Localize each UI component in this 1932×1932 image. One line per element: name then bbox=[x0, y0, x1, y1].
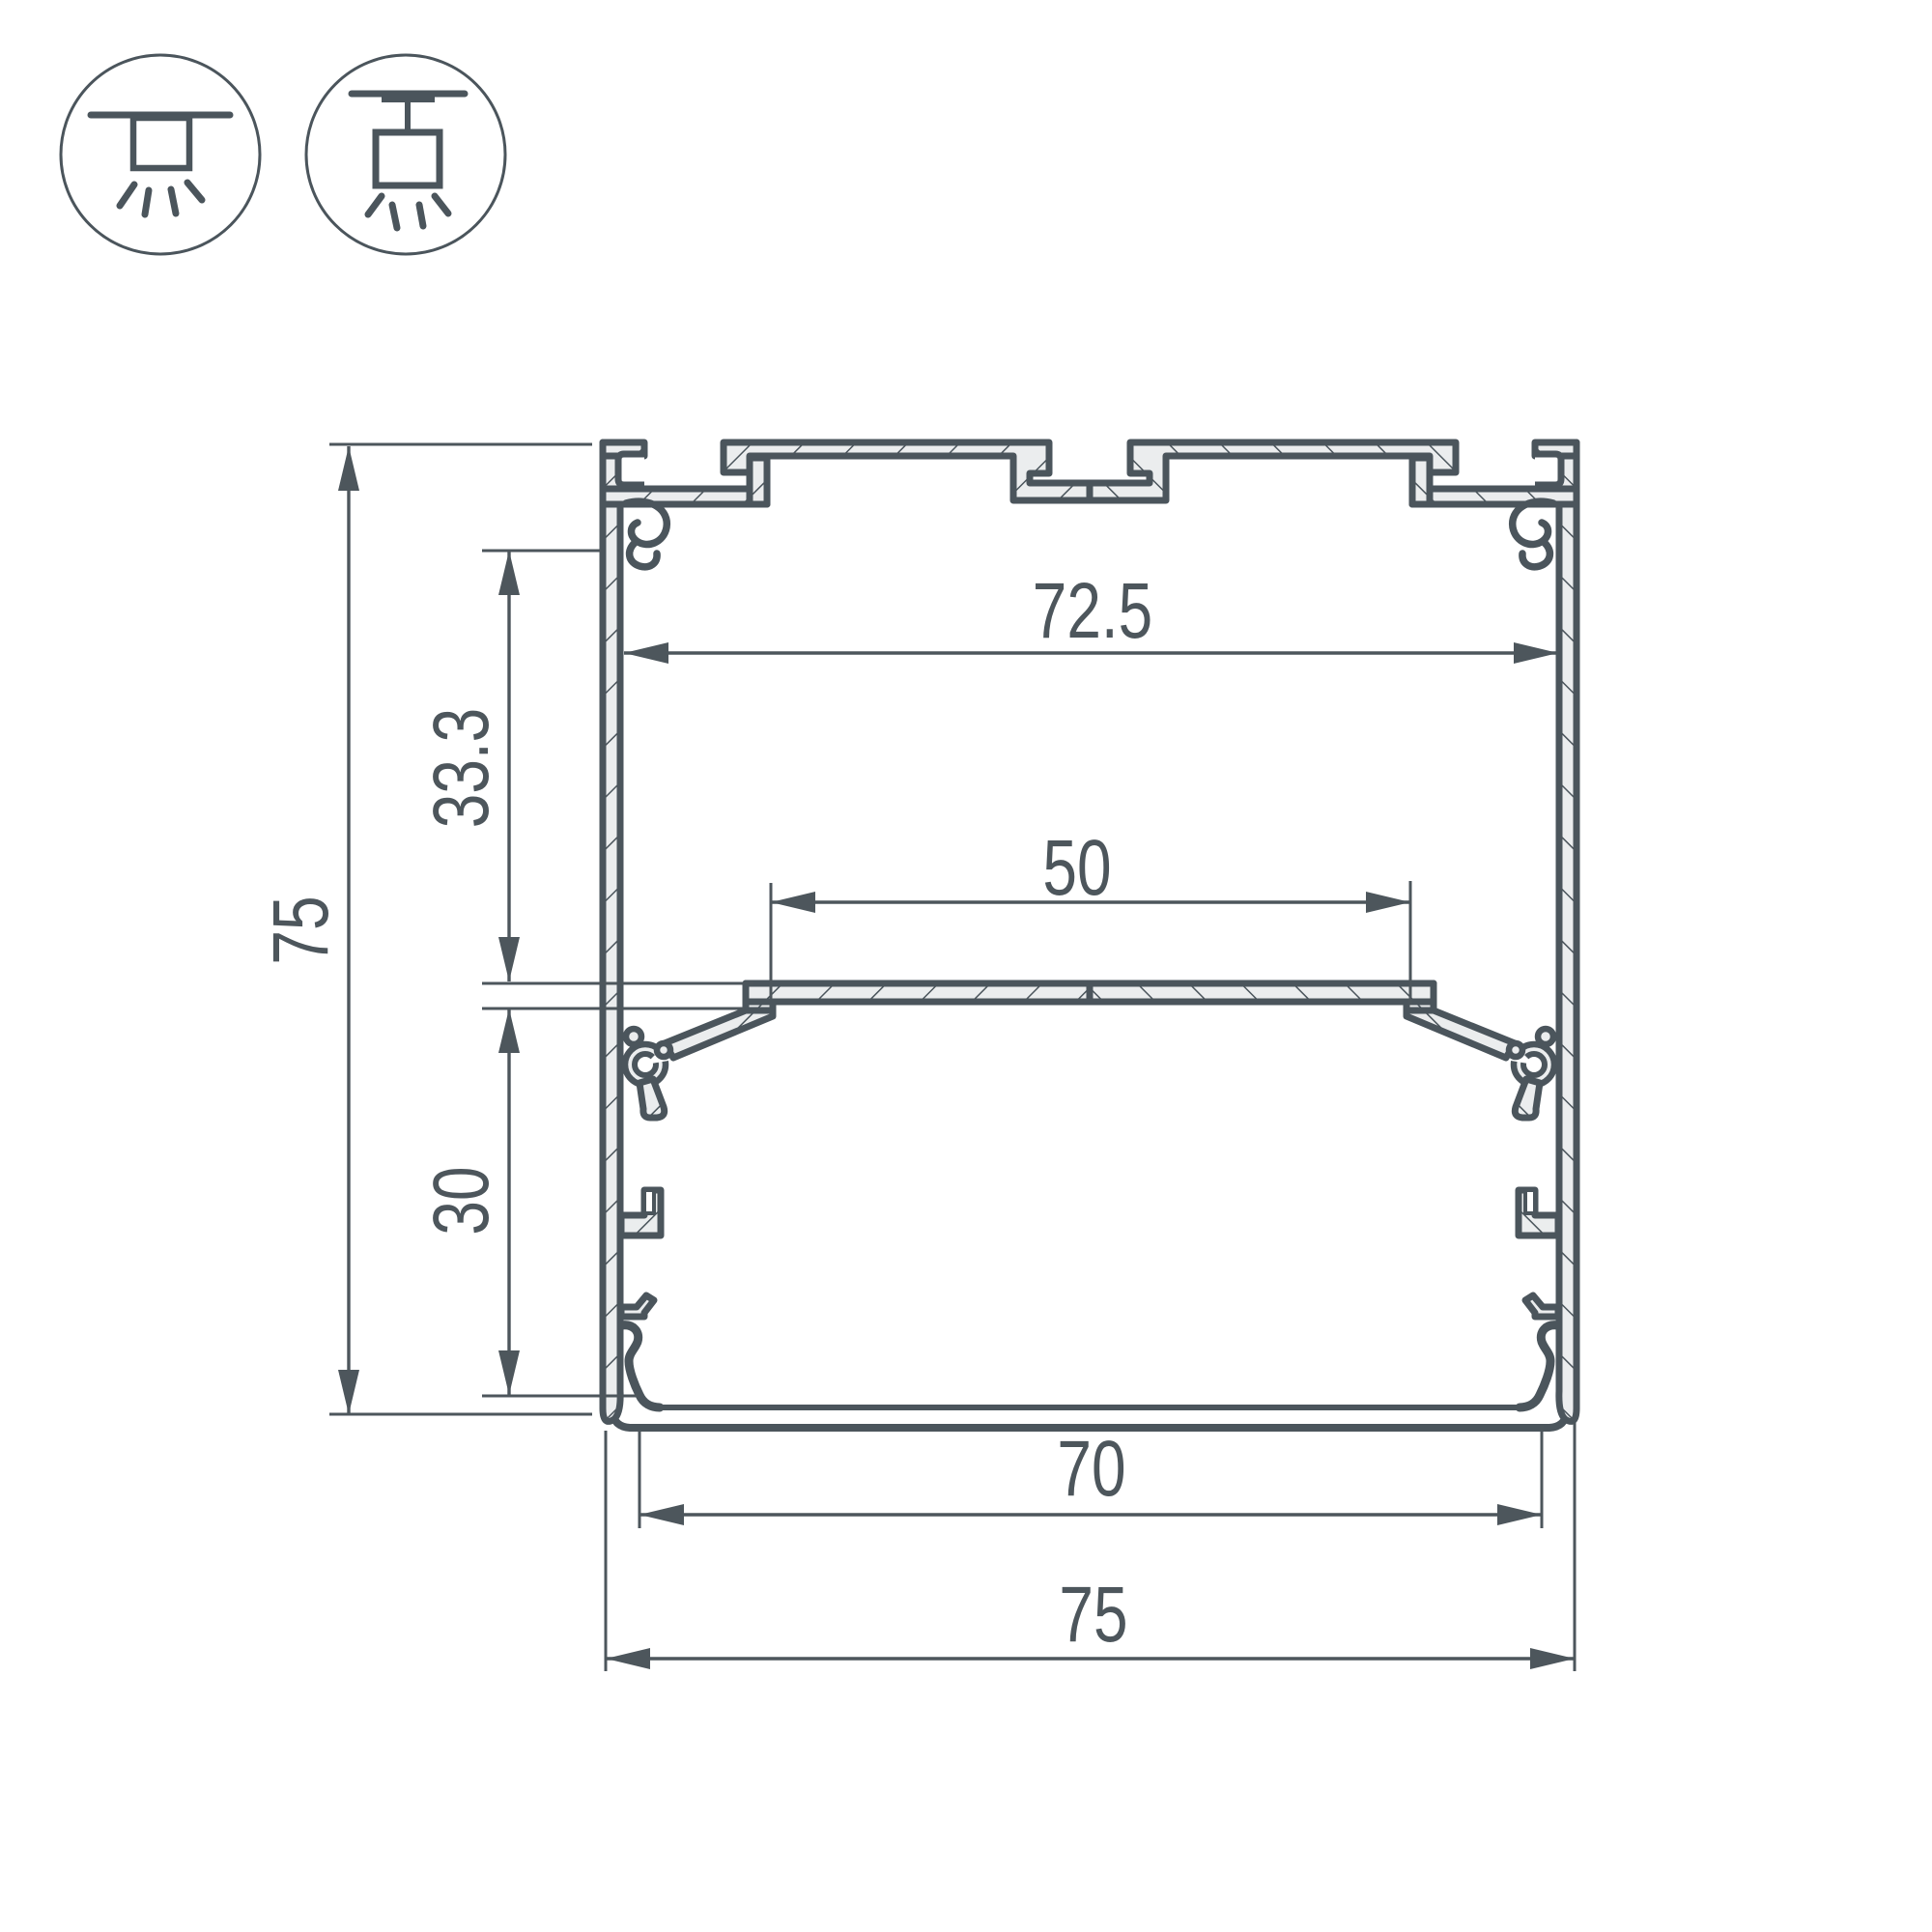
svg-text:75: 75 bbox=[255, 895, 345, 964]
svg-text:70: 70 bbox=[1057, 1423, 1125, 1513]
svg-text:72.5: 72.5 bbox=[1033, 565, 1152, 655]
svg-text:50: 50 bbox=[1042, 822, 1111, 912]
svg-text:75: 75 bbox=[1059, 1569, 1127, 1659]
svg-text:30: 30 bbox=[415, 1166, 505, 1235]
svg-text:33.3: 33.3 bbox=[415, 708, 505, 828]
